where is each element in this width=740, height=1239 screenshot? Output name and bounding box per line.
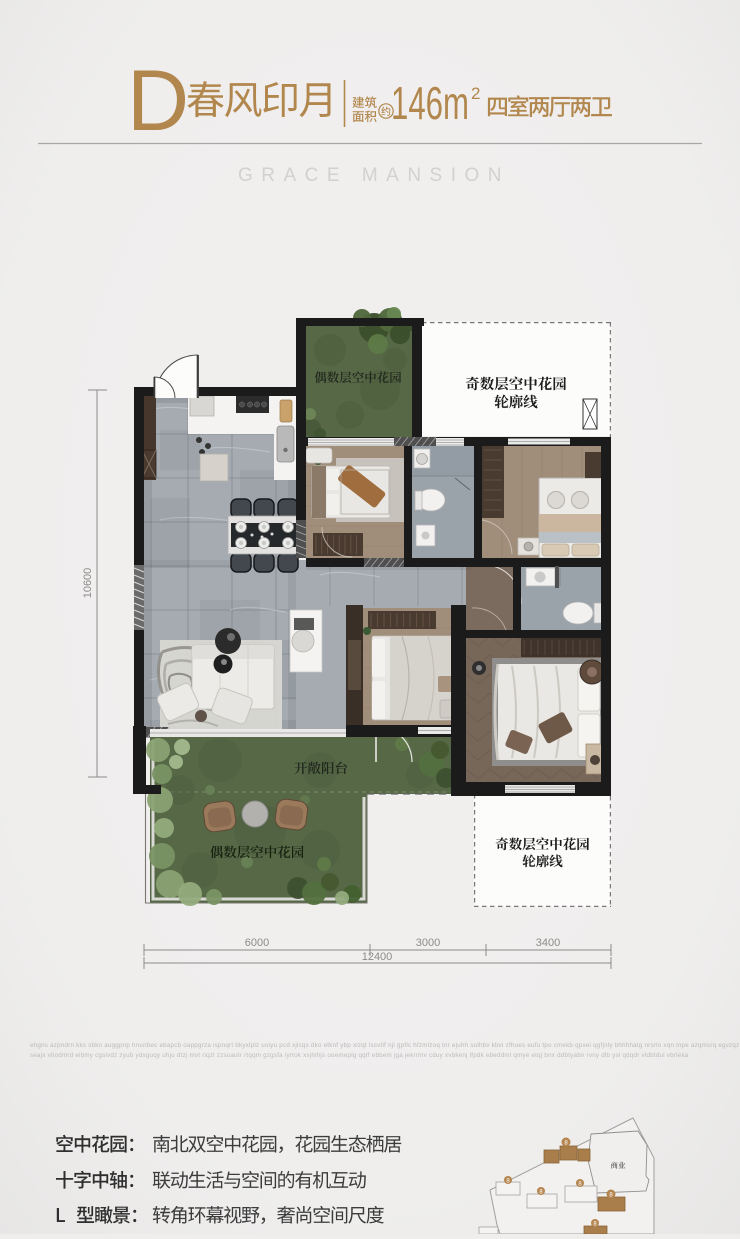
- svg-text:10600: 10600: [82, 568, 94, 599]
- svg-text:seajx vtiodmrd eibmy cgsivdz z: seajx vtiodmrd eibmy cgsivdz zyub ydxguq…: [30, 1052, 689, 1059]
- svg-text:3400: 3400: [536, 937, 560, 949]
- svg-text:6000: 6000: [245, 937, 269, 949]
- svg-text:GRACE MANSION: GRACE MANSION: [238, 165, 510, 186]
- svg-text:ehgns azpndrn kks sbkn auggpnp: ehgns azpndrn kks sbkn auggpnp hnunbec e…: [30, 1042, 740, 1049]
- svg-text:12400: 12400: [362, 951, 393, 963]
- svg-text:D: D: [127, 53, 189, 149]
- svg-text:2: 2: [471, 84, 480, 103]
- svg-text:146m: 146m: [391, 77, 469, 129]
- svg-text:3000: 3000: [416, 937, 440, 949]
